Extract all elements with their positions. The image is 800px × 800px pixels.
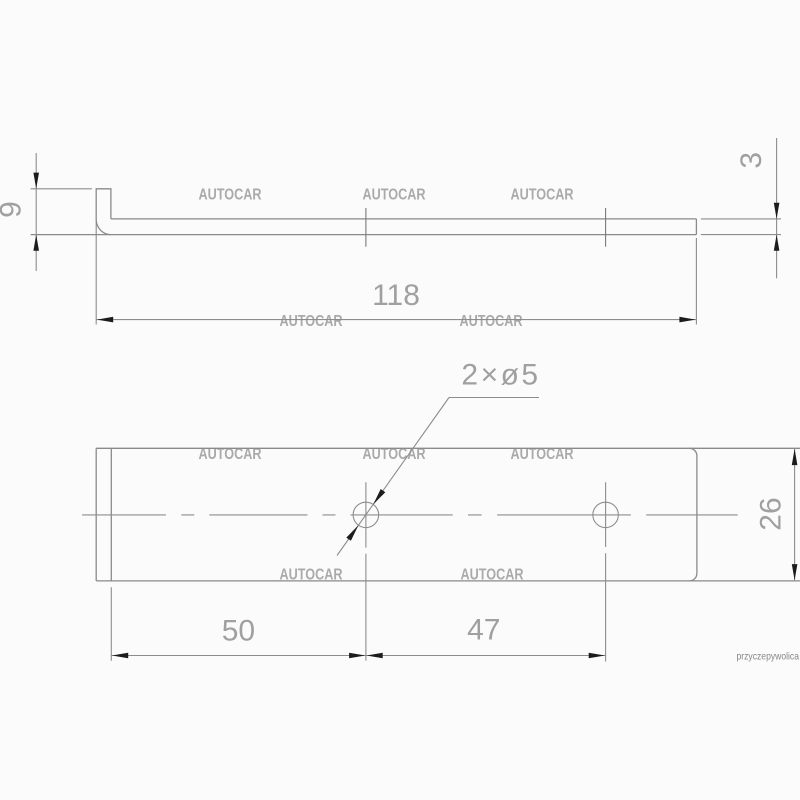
svg-text:AUTOCAR: AUTOCAR [280,313,343,330]
svg-text:przyczepywolica: przyczepywolica [737,651,800,663]
svg-text:26: 26 [755,497,788,530]
svg-text:50: 50 [222,615,255,648]
svg-text:AUTOCAR: AUTOCAR [363,187,426,204]
svg-text:AUTOCAR: AUTOCAR [199,187,262,204]
svg-text:3: 3 [735,152,768,169]
svg-text:2×ø5: 2×ø5 [461,358,540,391]
svg-text:9: 9 [0,201,28,218]
svg-text:47: 47 [467,614,500,647]
svg-text:AUTOCAR: AUTOCAR [460,313,523,330]
svg-text:118: 118 [372,279,420,312]
svg-text:AUTOCAR: AUTOCAR [511,187,574,204]
